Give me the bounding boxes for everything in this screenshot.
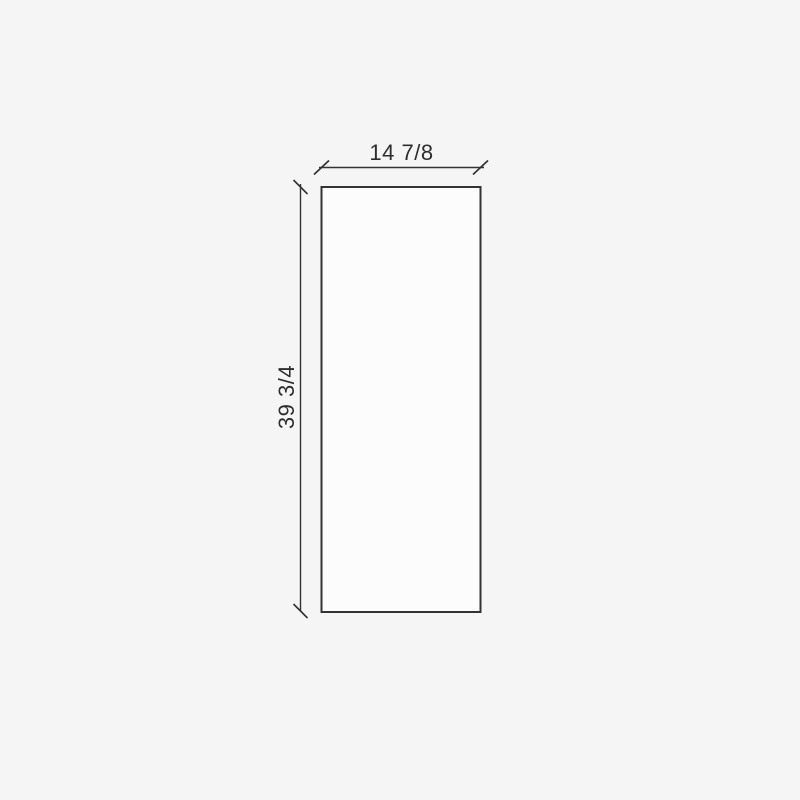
drawing-canvas: 14 7/8 39 3/4 <box>0 0 800 800</box>
height-dimension-label: 39 3/4 <box>275 337 299 457</box>
panel-outline <box>322 187 481 612</box>
width-dimension-label: 14 7/8 <box>321 141 482 165</box>
panel-drawing <box>0 0 800 800</box>
